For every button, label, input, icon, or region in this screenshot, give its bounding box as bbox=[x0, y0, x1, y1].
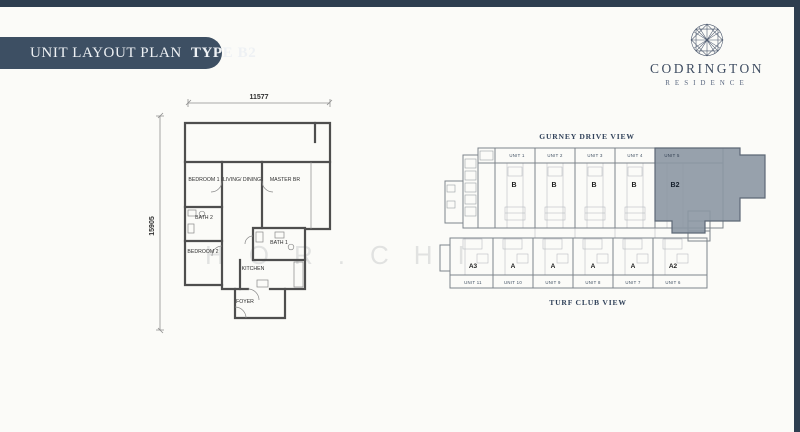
site-key-plan: GURNEY DRIVE VIEW bbox=[435, 123, 800, 315]
unit-label-highlighted: UNIT 5 bbox=[664, 153, 680, 158]
room-label-master: MASTER BR bbox=[270, 177, 301, 183]
room-label-bath2: BATH 2 bbox=[195, 215, 213, 221]
room-label-bath1: BATH 1 bbox=[270, 240, 288, 246]
unit-label: UNIT 8 bbox=[585, 280, 601, 285]
unit-label: UNIT 10 bbox=[504, 280, 522, 285]
unit-label: UNIT 3 bbox=[587, 153, 603, 158]
room-label-bedroom2: BEDROOM 2 bbox=[187, 249, 218, 255]
room-label-kitchen: KITCHEN bbox=[242, 266, 265, 272]
page-title: UNIT LAYOUT PLAN bbox=[30, 45, 182, 62]
dimension-lines bbox=[156, 99, 332, 333]
room-label-living: LIVING/ DINING bbox=[223, 177, 261, 183]
brand-block: CODRINGTON RESIDENCE bbox=[640, 22, 774, 87]
dim-width-label: 11577 bbox=[249, 94, 268, 101]
unit-type-label: A bbox=[551, 263, 556, 270]
brand-subtitle: RESIDENCE bbox=[640, 79, 774, 87]
unit-type-label: A bbox=[511, 263, 516, 270]
unit-type-label: B bbox=[551, 182, 556, 189]
unit-label: UNIT 7 bbox=[625, 280, 641, 285]
unit-type-label: A2 bbox=[669, 263, 678, 270]
highlighted-unit-b2 bbox=[655, 148, 765, 233]
gurney-drive-view-label: GURNEY DRIVE VIEW bbox=[539, 132, 634, 141]
unit-type-label: A3 bbox=[469, 263, 478, 270]
turf-club-view-label: TURF CLUB VIEW bbox=[549, 298, 626, 307]
room-label-bedroom1: BEDROOM 1 bbox=[188, 177, 219, 183]
unit-type-label-highlighted: B2 bbox=[671, 182, 680, 189]
unit-type-label: B bbox=[511, 182, 516, 189]
floor-plan: 11577 15905 bbox=[145, 86, 365, 351]
title-pill: UNIT LAYOUT PLAN TYPE B2 bbox=[0, 37, 222, 69]
core-boxes bbox=[447, 151, 493, 216]
unit-type-label: A bbox=[631, 263, 636, 270]
unit-label: UNIT 11 bbox=[464, 280, 482, 285]
unit-label: UNIT 6 bbox=[665, 280, 681, 285]
room-label-foyer: FOYER bbox=[236, 299, 254, 305]
unit-type-label: B bbox=[631, 182, 636, 189]
dim-height-label: 15905 bbox=[149, 216, 156, 236]
page-title-type: TYPE B2 bbox=[191, 45, 256, 62]
unit-type-label: A bbox=[591, 263, 596, 270]
unit-label: UNIT 1 bbox=[509, 153, 525, 158]
unit-label: UNIT 9 bbox=[545, 280, 561, 285]
unit-label: UNIT 2 bbox=[547, 153, 563, 158]
brand-logo-icon bbox=[689, 22, 725, 58]
top-border-bar bbox=[0, 0, 800, 7]
brand-name: CODRINGTON bbox=[640, 61, 774, 77]
unit-label: UNIT 4 bbox=[627, 153, 643, 158]
top-unit-types: B B B B B2 bbox=[511, 182, 679, 189]
page: UNIT LAYOUT PLAN TYPE B2 CODRINGTON RESI… bbox=[0, 0, 800, 432]
unit-type-label: B bbox=[591, 182, 596, 189]
